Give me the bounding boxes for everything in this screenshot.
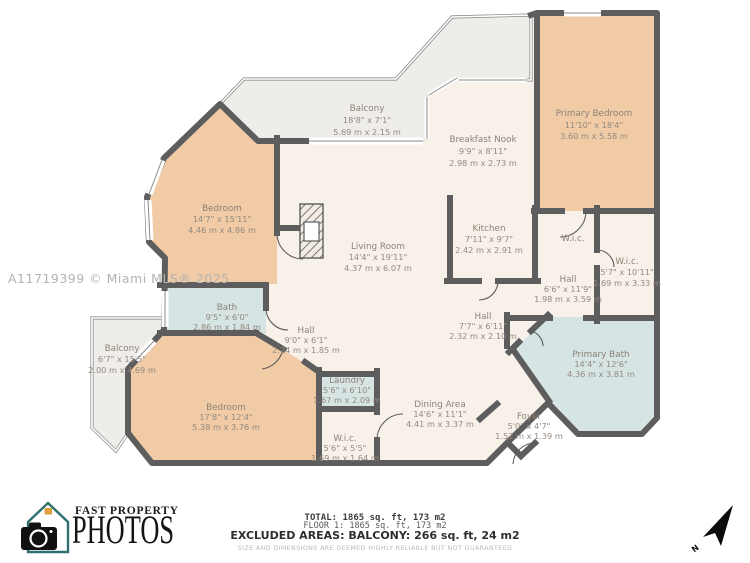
svg-text:2.98 m x 2.73 m: 2.98 m x 2.73 m — [449, 158, 517, 168]
svg-text:Breakfast Nook: Breakfast Nook — [449, 135, 517, 145]
house-camera-icon — [21, 503, 68, 552]
svg-text:2.32 m x 2.10 m: 2.32 m x 2.10 m — [449, 331, 517, 341]
label-wic-top: W.i.c. — [561, 234, 584, 244]
svg-text:7'11" x 9'7": 7'11" x 9'7" — [465, 234, 513, 244]
svg-text:14'7" x 15'11": 14'7" x 15'11" — [193, 214, 252, 224]
svg-text:9'0" x 6'1": 9'0" x 6'1" — [285, 335, 328, 345]
svg-text:5'7" x 10'11": 5'7" x 10'11" — [600, 267, 653, 277]
svg-text:6'7" x 15'5": 6'7" x 15'5" — [98, 354, 146, 364]
svg-text:1.52 m x 1.39 m: 1.52 m x 1.39 m — [495, 431, 563, 441]
svg-text:6'6" x 11'9": 6'6" x 11'9" — [544, 284, 592, 294]
svg-text:2.74 m x 1.85 m: 2.74 m x 1.85 m — [272, 345, 340, 355]
svg-text:4.36 m x 3.81 m: 4.36 m x 3.81 m — [567, 369, 635, 379]
label-primary-bedroom: Primary Bedroom 11'10" x 18'4" 3.60 m x … — [556, 109, 633, 141]
svg-text:14'4" x 12'6": 14'4" x 12'6" — [574, 359, 627, 369]
svg-text:4.37 m x 6.07 m: 4.37 m x 6.07 m — [344, 263, 412, 273]
svg-text:14'4" x 19'11": 14'4" x 19'11" — [349, 252, 408, 262]
label-primary-bath: Primary Bath 14'4" x 12'6" 4.36 m x 3.81… — [567, 350, 635, 379]
label-dining: Dining Area 14'6" x 11'1" 4.41 m x 3.37 … — [406, 400, 474, 429]
floorplan-page: A11719399 © Miami MLS® 2025 Balcony 18'8… — [0, 0, 750, 563]
svg-text:W.i.c.: W.i.c. — [561, 234, 584, 244]
svg-text:5'0" x 4'7": 5'0" x 4'7" — [508, 421, 551, 431]
svg-text:9'9" x 8'11": 9'9" x 8'11" — [459, 146, 507, 156]
structural-column — [300, 204, 323, 258]
svg-text:3.60 m x 5.58 m: 3.60 m x 5.58 m — [560, 131, 628, 141]
disclaimer: SIZE AND DIMENSIONS ARE DEEMED HIGHLY RE… — [238, 545, 513, 552]
svg-text:9'5" x 6'0": 9'5" x 6'0" — [206, 312, 249, 322]
svg-text:7'7" x 6'11": 7'7" x 6'11" — [459, 321, 507, 331]
svg-text:14'6" x 11'1": 14'6" x 11'1" — [413, 409, 466, 419]
svg-text:Living Room: Living Room — [351, 242, 405, 252]
svg-text:11'10" x 18'4": 11'10" x 18'4" — [565, 120, 624, 130]
svg-text:4.41 m x 3.37 m: 4.41 m x 3.37 m — [406, 419, 474, 429]
excluded-area: EXCLUDED AREAS: BALCONY: 266 sq. ft, 24 … — [230, 529, 519, 542]
svg-text:Balcony: Balcony — [350, 104, 385, 114]
svg-text:Kitchen: Kitchen — [472, 224, 505, 234]
floorplan-canvas: A11719399 © Miami MLS® 2025 Balcony 18'8… — [0, 0, 750, 563]
svg-text:5'6" x 6'10": 5'6" x 6'10" — [323, 385, 371, 395]
svg-text:18'8" x 7'1": 18'8" x 7'1" — [343, 115, 391, 125]
svg-text:2.86 m x 1.84 m: 2.86 m x 1.84 m — [193, 322, 261, 332]
logo-line2: PHOTOS — [72, 507, 174, 552]
svg-text:W.i.c.: W.i.c. — [615, 257, 638, 267]
svg-text:17'8" x 12'4": 17'8" x 12'4" — [199, 412, 252, 422]
svg-text:Bedroom: Bedroom — [202, 204, 242, 214]
svg-text:5'6" x 5'5": 5'6" x 5'5" — [324, 443, 367, 453]
svg-text:Primary Bedroom: Primary Bedroom — [556, 109, 633, 119]
svg-text:1.69 m x 3.33 m: 1.69 m x 3.33 m — [593, 278, 661, 288]
north-arrow-icon: N — [690, 505, 733, 554]
svg-text:1.98 m x 3.59 m: 1.98 m x 3.59 m — [534, 294, 602, 304]
svg-text:1.67 m x 2.09 m: 1.67 m x 2.09 m — [313, 395, 381, 405]
window-bay-left — [148, 200, 150, 240]
svg-text:1.69 m x 1.64 m: 1.69 m x 1.64 m — [311, 453, 379, 463]
svg-text:5.38 m x 3.76 m: 5.38 m x 3.76 m — [192, 422, 260, 432]
mls-watermark: A11719399 © Miami MLS® 2025 — [8, 271, 230, 286]
fast-property-photos-logo: FAST PROPERTY PHOTOS — [21, 503, 179, 552]
svg-text:2.00 m x 4.69 m: 2.00 m x 4.69 m — [88, 365, 156, 375]
label-living-room: Living Room 14'4" x 19'11" 4.37 m x 6.07… — [344, 242, 412, 273]
north-label: N — [690, 543, 701, 554]
svg-text:5.69 m x 2.15 m: 5.69 m x 2.15 m — [333, 127, 401, 137]
svg-text:4.46 m x 4.86 m: 4.46 m x 4.86 m — [188, 225, 256, 235]
svg-text:2.42 m x 2.91 m: 2.42 m x 2.91 m — [455, 245, 523, 255]
svg-text:Balcony: Balcony — [105, 344, 140, 354]
area-summary: TOTAL: 1865 sq. ft, 173 m2 FLOOR 1: 1865… — [230, 513, 519, 552]
